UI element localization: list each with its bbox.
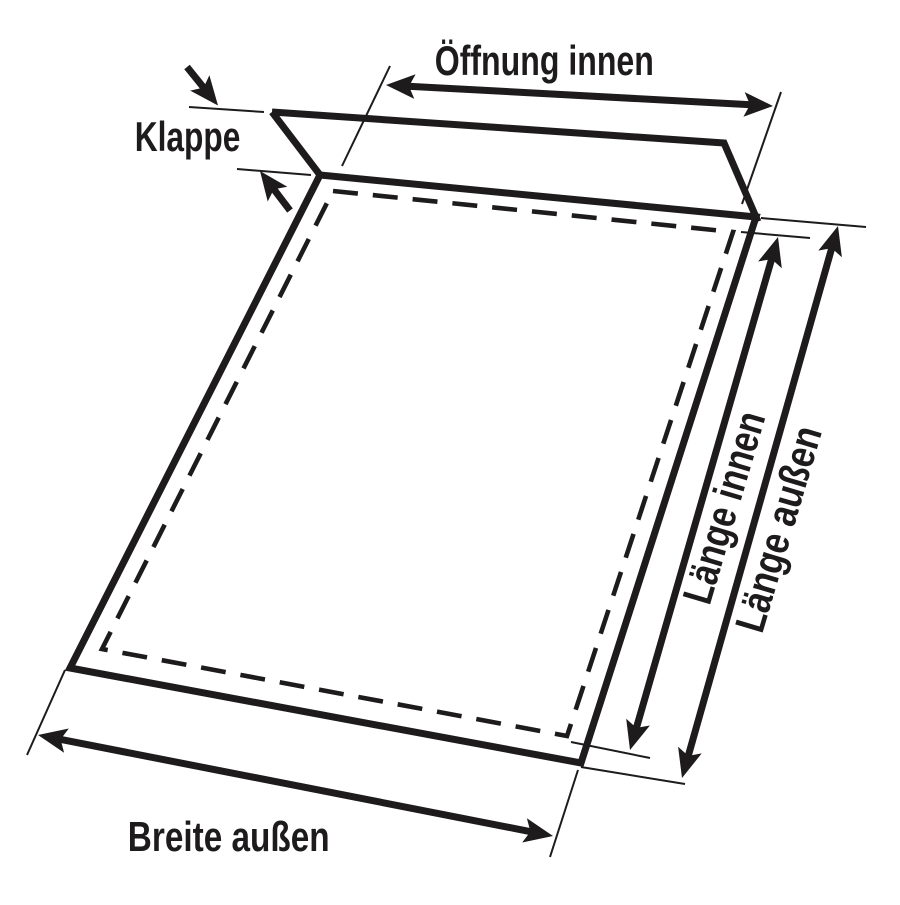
- svg-text:Breite außen: Breite außen: [128, 814, 330, 860]
- svg-text:Klappe: Klappe: [135, 114, 241, 160]
- svg-text:Öffnung innen: Öffnung innen: [435, 37, 654, 84]
